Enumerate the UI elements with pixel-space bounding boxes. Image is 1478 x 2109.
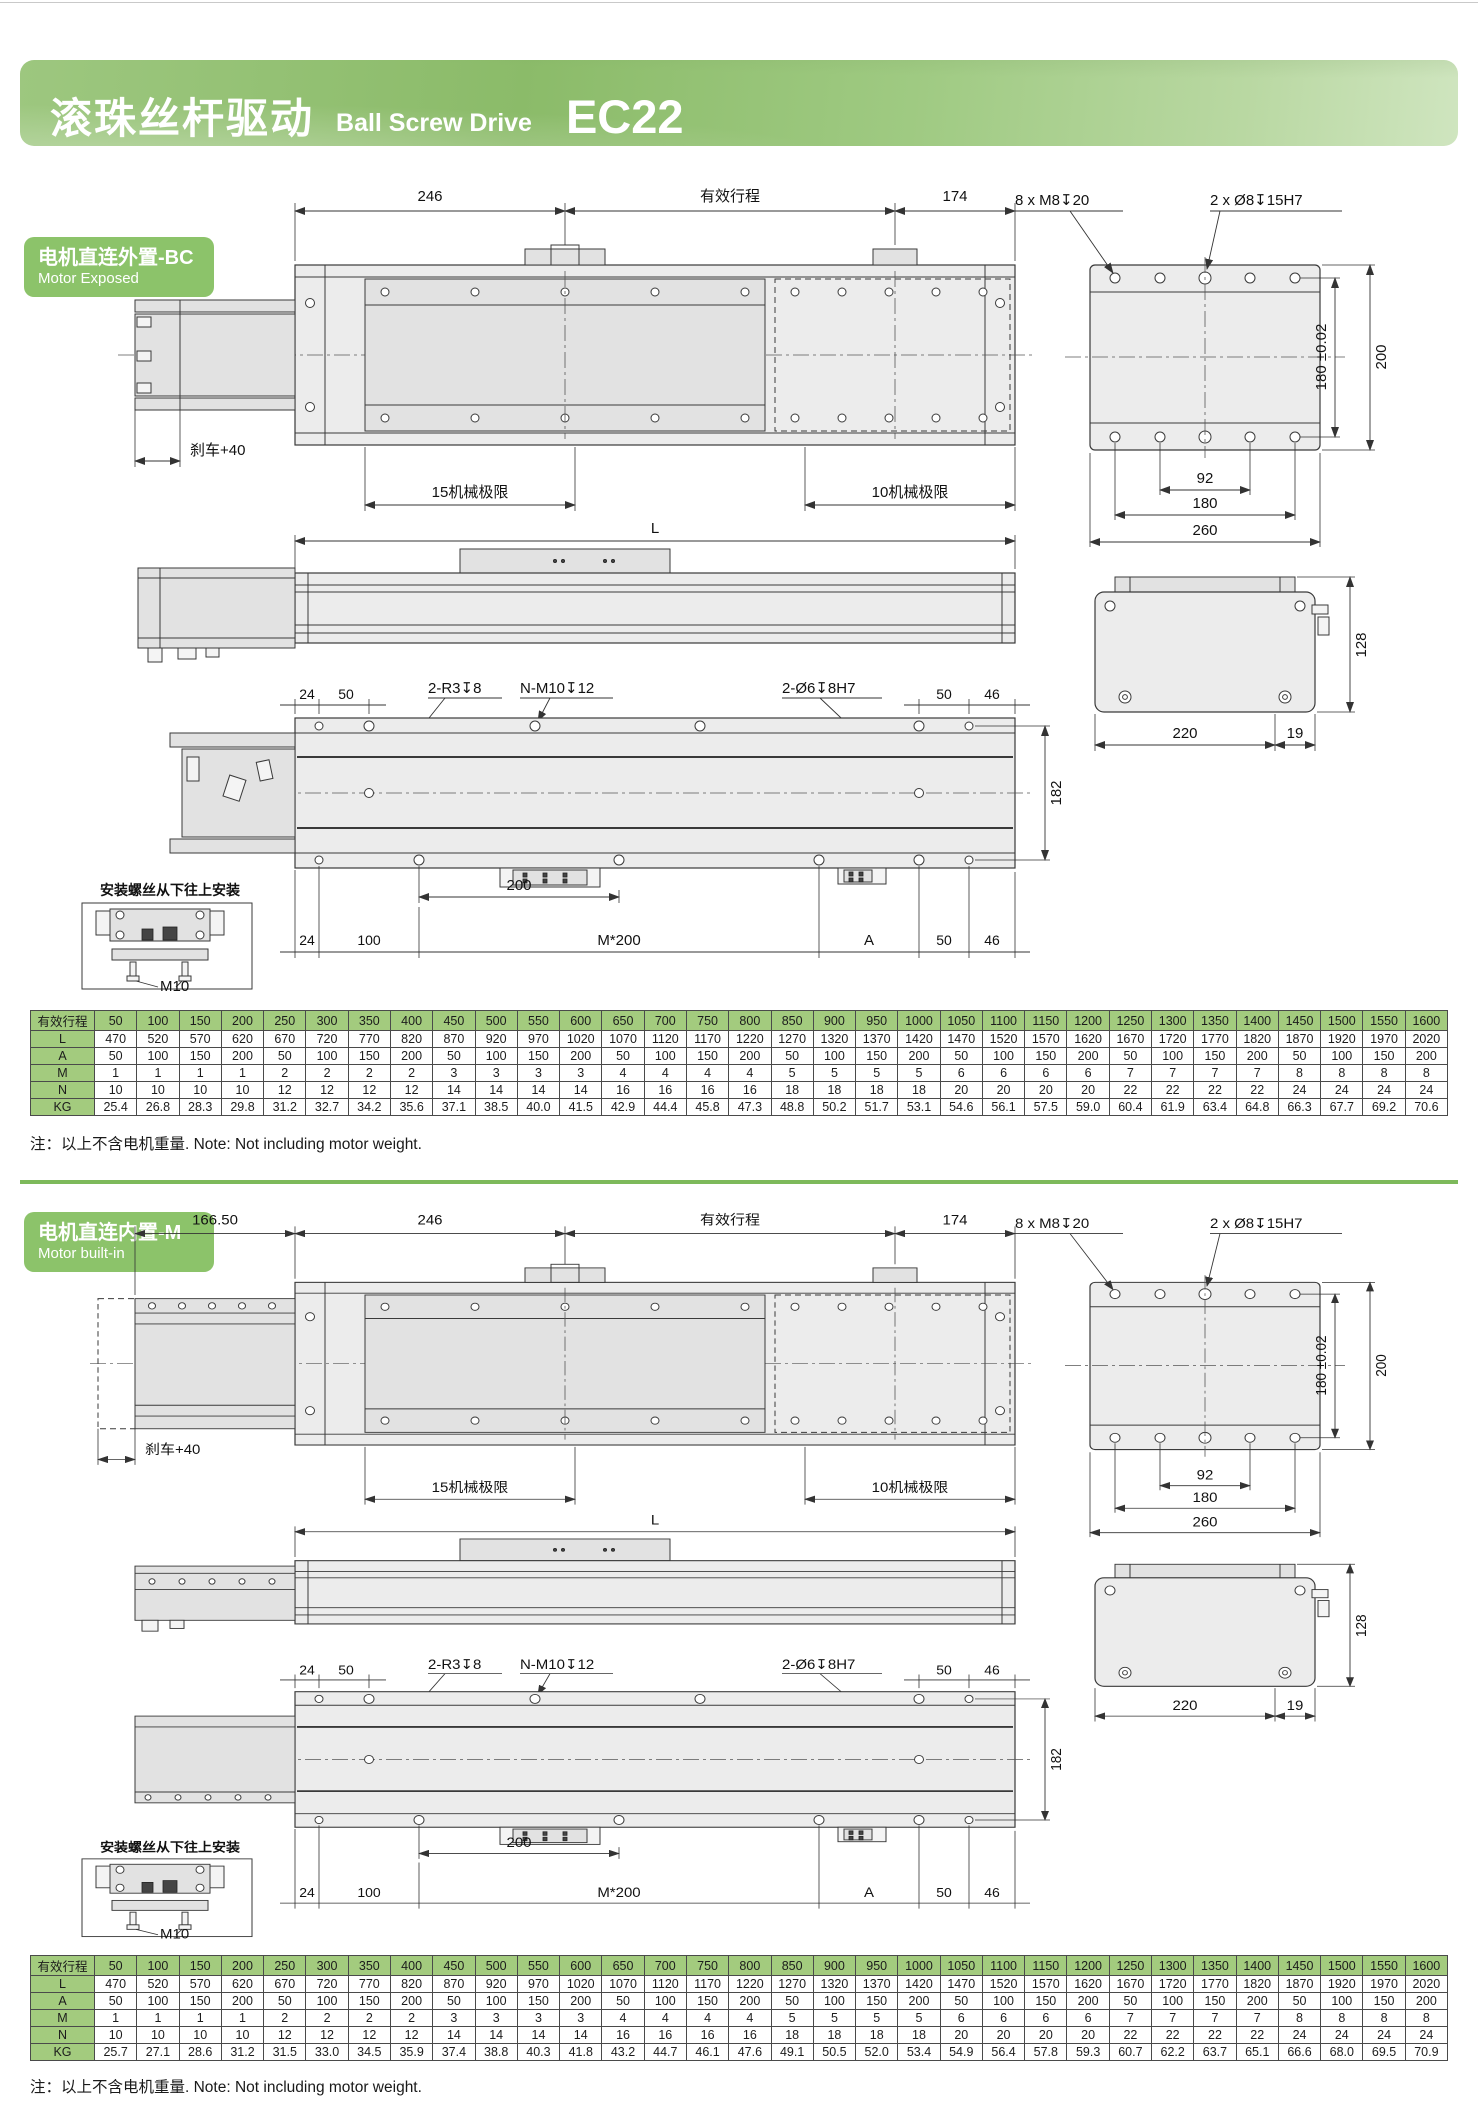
- table-cell: 6: [1025, 2010, 1067, 2027]
- table-cell: 1420: [898, 1031, 940, 1048]
- table-cell: 54.6: [940, 1099, 982, 1116]
- table-cell: 8: [1321, 2010, 1363, 2027]
- table-cell: 3: [433, 2010, 475, 2027]
- table-cell: 570: [179, 1031, 221, 1048]
- table-cell: 5: [856, 1065, 898, 1082]
- table-cell: 100: [1152, 1993, 1194, 2010]
- table-cell: 1620: [1067, 1976, 1109, 1993]
- table-cell: 10: [137, 2027, 179, 2044]
- table-cell: A: [31, 1048, 95, 1065]
- dim-260: 260: [1192, 522, 1217, 539]
- datasheet-page: 滚珠丝杆驱动 Ball Screw Drive EC22 电机直连外置-BC M…: [0, 0, 1478, 2109]
- table-cell: 1: [179, 1065, 221, 1082]
- dim-24b: 24: [299, 932, 315, 948]
- plan-view-m: 166.50 246 有效行程 174 刹车+40 15机械极限 10机械极限: [90, 1212, 1035, 1504]
- table-cell: 500: [475, 1011, 517, 1031]
- table-cell: L: [31, 1976, 95, 1993]
- dim-24t-m: 24: [299, 1663, 315, 1677]
- table-cell: 6: [982, 1065, 1024, 1082]
- table-cell: 1550: [1363, 1011, 1405, 1031]
- table-cell: 34.2: [348, 1099, 390, 1116]
- table-cell: 32.7: [306, 1099, 348, 1116]
- dim-m200: M*200: [597, 932, 640, 949]
- table-cell: 16: [686, 1082, 728, 1099]
- table-cell: 10: [95, 2027, 137, 2044]
- callout-r3: 2-R3↧8: [428, 680, 481, 697]
- table-cell: 25.4: [95, 1099, 137, 1116]
- table-cell: 1820: [1236, 1031, 1278, 1048]
- table-cell: 50.5: [813, 2044, 855, 2061]
- table-cell: 100: [137, 1011, 179, 1031]
- table-cell: 59.0: [1067, 1099, 1109, 1116]
- table-cell: 50: [1109, 1993, 1151, 2010]
- table-cell: 100: [644, 1048, 686, 1065]
- table-cell: 620: [221, 1031, 263, 1048]
- dim-24t: 24: [299, 686, 315, 702]
- note-bc: 注：以上不含电机重量. Note: Not including motor we…: [30, 1132, 422, 1154]
- table-cell: 900: [813, 1956, 855, 1976]
- dim-128: 128: [1353, 632, 1370, 657]
- table-cell: 63.4: [1194, 1099, 1236, 1116]
- table-cell: 20: [1025, 1082, 1067, 1099]
- table-cell: 22: [1236, 1082, 1278, 1099]
- table-cell: 570: [179, 1976, 221, 1993]
- table-cell: 350: [348, 1956, 390, 1976]
- table-cell: 2: [348, 1065, 390, 1082]
- table-cell: 1: [179, 2010, 221, 2027]
- table-cell: 200: [1405, 1048, 1447, 1065]
- dim-19: 19: [1287, 725, 1304, 742]
- table-cell: 820: [390, 1976, 432, 1993]
- table-cell: 45.8: [686, 1099, 728, 1116]
- table-cell: 670: [264, 1976, 306, 1993]
- table-cell: 200: [1236, 1048, 1278, 1065]
- table-cell: 50: [95, 1956, 137, 1976]
- table-cell: 69.5: [1363, 2044, 1405, 2061]
- table-cell: 1120: [644, 1976, 686, 1993]
- callout-nm10: N-M10↧12: [520, 680, 594, 697]
- table-cell: 66.6: [1278, 2044, 1320, 2061]
- table-cell: 50: [602, 1048, 644, 1065]
- table-cell: 100: [306, 1993, 348, 2010]
- table-cell: 1170: [686, 1976, 728, 1993]
- table-cell: 1050: [940, 1011, 982, 1031]
- table-cell: 20: [982, 2027, 1024, 2044]
- table-cell: 150: [1025, 1993, 1067, 2010]
- table-cell: 24: [1405, 1082, 1447, 1099]
- table-cell: 150: [1363, 1048, 1405, 1065]
- table-cell: 1270: [771, 1976, 813, 1993]
- table-cell: 520: [137, 1031, 179, 1048]
- table-row: KG25.727.128.631.231.533.034.535.937.438…: [31, 2044, 1448, 2061]
- dim-180: 180: [1192, 495, 1217, 512]
- table-cell: 50: [771, 1048, 813, 1065]
- top-plate-view-m: 8 x M8↧20 2 x Ø8↧15H7 180 ±0.02 200 92 1…: [1015, 1217, 1390, 1537]
- table-cell: 43.2: [602, 2044, 644, 2061]
- table-cell: 47.6: [729, 2044, 771, 2061]
- section1-drawing: 246 有效行程 174 刹车+40 15机械极限 10机械极限: [30, 165, 1448, 995]
- table-cell: 200: [560, 1993, 602, 2010]
- table-cell: 50: [433, 1048, 475, 1065]
- table-cell: 150: [1194, 1048, 1236, 1065]
- dim-50b-m: 50: [936, 1885, 952, 1899]
- table-cell: 51.7: [856, 1099, 898, 1116]
- mounting-inset-m: 安装螺丝从下往上安装 M10: [82, 1839, 252, 1942]
- table-cell: 7: [1236, 2010, 1278, 2027]
- table-cell: 22: [1194, 1082, 1236, 1099]
- plan-view: 246 有效行程 174 刹车+40 15机械极限 10机械极限: [118, 188, 1035, 511]
- table-cell: 26.8: [137, 1099, 179, 1116]
- table-cell: 1300: [1152, 1011, 1194, 1031]
- dim-220-m: 220: [1172, 1698, 1197, 1713]
- table-cell: 470: [95, 1031, 137, 1048]
- table-cell: 1520: [982, 1031, 1024, 1048]
- table-cell: 18: [856, 2027, 898, 2044]
- callout-r3-m: 2-R3↧8: [428, 1658, 481, 1673]
- table-cell: 44.7: [644, 2044, 686, 2061]
- table-cell: 100: [813, 1048, 855, 1065]
- callout-phi8: 2 x Ø8↧15H7: [1210, 192, 1303, 209]
- table-cell: 700: [644, 1956, 686, 1976]
- table-cell: 1920: [1321, 1976, 1363, 1993]
- table-cell: 65.1: [1236, 2044, 1278, 2061]
- table-cell: 1350: [1194, 1956, 1236, 1976]
- table-cell: 600: [560, 1011, 602, 1031]
- table-cell: 28.6: [179, 2044, 221, 2061]
- table-cell: 4: [729, 1065, 771, 1082]
- table-cell: 400: [390, 1011, 432, 1031]
- dim-L-m: L: [651, 1513, 659, 1528]
- table-cell: 700: [644, 1011, 686, 1031]
- table-cell: 100: [813, 1993, 855, 2010]
- table-row: L470520570620670720770820870920970102010…: [31, 1031, 1448, 1048]
- table-cell: 12: [264, 1082, 306, 1099]
- table-cell: 24: [1321, 1082, 1363, 1099]
- table-cell: 400: [390, 1956, 432, 1976]
- table-cell: 150: [179, 1048, 221, 1065]
- table-cell: 4: [644, 2010, 686, 2027]
- table-cell: 10: [221, 1082, 263, 1099]
- table-cell: 100: [137, 1048, 179, 1065]
- table-cell: 100: [644, 1993, 686, 2010]
- table-cell: 1220: [729, 1976, 771, 1993]
- table-cell: 150: [179, 1993, 221, 2010]
- table-cell: 200: [221, 1993, 263, 2010]
- table-cell: 14: [560, 1082, 602, 1099]
- motor-bottom: [170, 733, 295, 853]
- table-cell: 16: [644, 2027, 686, 2044]
- table-cell: 12: [306, 2027, 348, 2044]
- table-cell: 20: [1067, 2027, 1109, 2044]
- table-cell: 250: [264, 1956, 306, 1976]
- dim-182-m: 182: [1048, 1748, 1065, 1771]
- section-divider: [20, 1180, 1458, 1184]
- dim-200b-m: 200: [506, 1836, 531, 1851]
- dim-46tr-m: 46: [984, 1663, 1000, 1677]
- callout-m8: 8 x M8↧20: [1015, 192, 1089, 209]
- table-cell: 52.0: [856, 2044, 898, 2061]
- table-cell: 150: [179, 1011, 221, 1031]
- table-cell: 46.1: [686, 2044, 728, 2061]
- table-cell: 60.7: [1109, 2044, 1151, 2061]
- table-cell: 1420: [898, 1976, 940, 1993]
- table-cell: 1870: [1278, 1031, 1320, 1048]
- table-cell: 4: [602, 1065, 644, 1082]
- table-cell: 720: [306, 1976, 348, 1993]
- table-cell: 50: [1278, 1993, 1320, 2010]
- table-cell: 有效行程: [31, 1011, 95, 1031]
- table-cell: 10: [179, 1082, 221, 1099]
- table-cell: 950: [856, 1011, 898, 1031]
- table-cell: 69.2: [1363, 1099, 1405, 1116]
- table-cell: 22: [1236, 2027, 1278, 2044]
- side-view-m: L: [135, 1513, 1015, 1631]
- table-cell: 300: [306, 1011, 348, 1031]
- table-cell: 1000: [898, 1956, 940, 1976]
- table-cell: 22: [1152, 1082, 1194, 1099]
- table-cell: 550: [517, 1956, 559, 1976]
- table-cell: 12: [264, 2027, 306, 2044]
- table-cell: 35.6: [390, 1099, 432, 1116]
- table-cell: 31.5: [264, 2044, 306, 2061]
- table-cell: 50: [95, 1011, 137, 1031]
- spec-table-bc: 有效行程501001502002503003504004505005506006…: [30, 1010, 1448, 1116]
- table-cell: 1: [137, 1065, 179, 1082]
- page-title-en: Ball Screw Drive: [336, 111, 532, 136]
- table-cell: 100: [1152, 1048, 1194, 1065]
- table-cell: A: [31, 1993, 95, 2010]
- table-cell: 3: [475, 1065, 517, 1082]
- table-cell: 1200: [1067, 1011, 1109, 1031]
- dim-stroke: 有效行程: [700, 188, 760, 205]
- table-cell: 970: [517, 1976, 559, 1993]
- table-row: M11112222333344445555666677778888: [31, 1065, 1448, 1082]
- dim-246-m: 246: [417, 1213, 442, 1228]
- table-cell: 38.5: [475, 1099, 517, 1116]
- table-cell: 34.5: [348, 2044, 390, 2061]
- table-cell: 1000: [898, 1011, 940, 1031]
- table-cell: 920: [475, 1031, 517, 1048]
- inset-m10-label-m: M10: [160, 1927, 189, 1942]
- inset-m10-label: M10: [160, 978, 189, 995]
- table-cell: M: [31, 1065, 95, 1082]
- table-cell: 10: [221, 2027, 263, 2044]
- table-cell: 42.9: [602, 1099, 644, 1116]
- table-cell: 900: [813, 1011, 855, 1031]
- inset-caption-m: 安装螺丝从下往上安装: [100, 1839, 241, 1854]
- table-cell: 6: [1025, 1065, 1067, 1082]
- table-cell: 200: [390, 1993, 432, 2010]
- table-cell: 14: [517, 2027, 559, 2044]
- table-cell: 770: [348, 1031, 390, 1048]
- table-cell: 22: [1152, 2027, 1194, 2044]
- table-cell: 14: [433, 1082, 475, 1099]
- table-cell: 1470: [940, 1976, 982, 1993]
- mounting-inset: 安装螺丝从下往上安装 M10: [82, 882, 252, 995]
- table-cell: 1500: [1321, 1956, 1363, 1976]
- dim-180-tol: 180 ±0.02: [1313, 324, 1330, 391]
- table-cell: 54.9: [940, 2044, 982, 2061]
- table-cell: 1870: [1278, 1976, 1320, 1993]
- table-cell: 70.9: [1405, 2044, 1447, 2061]
- table-row: A501001502005010015020050100150200501001…: [31, 1993, 1448, 2010]
- table-cell: 50: [433, 1993, 475, 2010]
- end-view-m: 128 220 19: [1095, 1564, 1370, 1721]
- table-cell: 6: [940, 1065, 982, 1082]
- table-cell: 33.0: [306, 2044, 348, 2061]
- table-cell: 24: [1278, 1082, 1320, 1099]
- table-cell: 1120: [644, 1031, 686, 1048]
- table-cell: 50.2: [813, 1099, 855, 1116]
- table-cell: 150: [517, 1048, 559, 1065]
- dim-limit15-m: 15机械极限: [432, 1480, 509, 1496]
- table-cell: 14: [560, 2027, 602, 2044]
- table-cell: 100: [475, 1048, 517, 1065]
- table-cell: 600: [560, 1956, 602, 1976]
- table-cell: 50: [771, 1993, 813, 2010]
- table-cell: 27.1: [137, 2044, 179, 2061]
- table-cell: 50: [95, 1993, 137, 2010]
- dim-100-m: 100: [357, 1885, 380, 1899]
- table-cell: 47.3: [729, 1099, 771, 1116]
- table-cell: 1820: [1236, 1976, 1278, 1993]
- table-cell: 50: [940, 1048, 982, 1065]
- table-cell: 10: [179, 2027, 221, 2044]
- dim-180-tol-m: 180 ±0.02: [1313, 1335, 1330, 1395]
- dim-46b-m: 46: [984, 1885, 1000, 1899]
- table-cell: N: [31, 1082, 95, 1099]
- table-cell: 470: [95, 1976, 137, 1993]
- table-cell: 250: [264, 1011, 306, 1031]
- table-cell: 12: [348, 1082, 390, 1099]
- table-cell: 5: [898, 1065, 940, 1082]
- table-cell: 20: [1067, 1082, 1109, 1099]
- dim-128-m: 128: [1353, 1614, 1370, 1637]
- inset-caption: 安装螺丝从下往上安装: [100, 882, 241, 898]
- table-cell: 5: [813, 1065, 855, 1082]
- table-cell: 28.3: [179, 1099, 221, 1116]
- table-cell: 1570: [1025, 1976, 1067, 1993]
- table-cell: 16: [644, 1082, 686, 1099]
- table-cell: 50: [264, 1993, 306, 2010]
- table-cell: 18: [813, 1082, 855, 1099]
- table-cell: 150: [517, 1993, 559, 2010]
- table-cell: 50: [602, 1993, 644, 2010]
- dim-260-m: 260: [1192, 1515, 1217, 1530]
- table-cell: 22: [1109, 2027, 1151, 2044]
- table-cell: 200: [1405, 1993, 1447, 2010]
- table-cell: 38.8: [475, 2044, 517, 2061]
- table-cell: 870: [433, 1976, 475, 1993]
- dim-limit10-m: 10机械极限: [872, 1480, 949, 1496]
- table-cell: 5: [771, 2010, 813, 2027]
- table-cell: 7: [1152, 1065, 1194, 1082]
- callout-phi8-m: 2 x Ø8↧15H7: [1210, 1217, 1303, 1232]
- dim-stroke-m: 有效行程: [700, 1212, 760, 1228]
- table-cell: 800: [729, 1956, 771, 1976]
- dim-166: 166.50: [192, 1213, 238, 1228]
- dim-92-m: 92: [1197, 1468, 1214, 1483]
- table-cell: 1020: [560, 1976, 602, 1993]
- table-cell: 520: [137, 1976, 179, 1993]
- table-row: KG25.426.828.329.831.232.734.235.637.138…: [31, 1099, 1448, 1116]
- table-cell: 200: [1236, 1993, 1278, 2010]
- table-cell: 48.8: [771, 1099, 813, 1116]
- table-cell: 20: [940, 2027, 982, 2044]
- table-cell: 16: [602, 2027, 644, 2044]
- table-cell: 8: [1278, 1065, 1320, 1082]
- table-cell: 200: [898, 1048, 940, 1065]
- top-rule: [0, 2, 1478, 3]
- table-cell: 150: [856, 1048, 898, 1065]
- table-cell: 6: [940, 2010, 982, 2027]
- table-cell: 20: [940, 1082, 982, 1099]
- dim-100: 100: [357, 932, 381, 948]
- table-cell: 1520: [982, 1976, 1024, 1993]
- end-view: 128 220 19: [1095, 577, 1370, 751]
- table-cell: KG: [31, 2044, 95, 2061]
- table-cell: 650: [602, 1956, 644, 1976]
- table-cell: 620: [221, 1976, 263, 1993]
- table-cell: 1200: [1067, 1956, 1109, 1976]
- table-row: N101010101212121214141414161616161818181…: [31, 1082, 1448, 1099]
- dim-19-m: 19: [1287, 1698, 1304, 1713]
- table-cell: 970: [517, 1031, 559, 1048]
- table-cell: 1070: [602, 1031, 644, 1048]
- table-cell: 3: [433, 1065, 475, 1082]
- table-cell: L: [31, 1031, 95, 1048]
- table-row: A501001502005010015020050100150200501001…: [31, 1048, 1448, 1065]
- table-cell: 12: [390, 2027, 432, 2044]
- table-cell: 2: [264, 1065, 306, 1082]
- table-cell: 14: [475, 1082, 517, 1099]
- table-cell: 1: [221, 2010, 263, 2027]
- builtin-bottom: [135, 1716, 295, 1803]
- table-cell: 1670: [1109, 1976, 1151, 1993]
- top-plate-view: 8 x M8↧20 2 x Ø8↧15H7 180 ±0.02 200 92 1…: [1015, 192, 1390, 547]
- table-cell: 16: [729, 1082, 771, 1099]
- table-cell: 200: [221, 1956, 263, 1976]
- table-cell: 2020: [1405, 1031, 1447, 1048]
- table-cell: 750: [686, 1956, 728, 1976]
- table-cell: 3: [560, 2010, 602, 2027]
- table-cell: 24: [1363, 2027, 1405, 2044]
- motor-exposed: [135, 300, 295, 410]
- table-cell: 150: [348, 1048, 390, 1065]
- table-cell: 49.1: [771, 2044, 813, 2061]
- table-cell: 60.4: [1109, 1099, 1151, 1116]
- page-header-banner: 滚珠丝杆驱动 Ball Screw Drive EC22: [20, 60, 1458, 146]
- table-cell: 35.9: [390, 2044, 432, 2061]
- table-cell: 1020: [560, 1031, 602, 1048]
- table-cell: 200: [221, 1011, 263, 1031]
- table-cell: 2: [390, 2010, 432, 2027]
- table-cell: 16: [602, 1082, 644, 1099]
- table-cell: 5: [856, 2010, 898, 2027]
- dim-246: 246: [417, 188, 442, 205]
- table-cell: 16: [729, 2027, 771, 2044]
- dim-50t: 50: [338, 686, 354, 702]
- table-row: L470520570620670720770820870920970102010…: [31, 1976, 1448, 1993]
- table-cell: 37.4: [433, 2044, 475, 2061]
- table-cell: 18: [813, 2027, 855, 2044]
- table-cell: 150: [348, 1993, 390, 2010]
- table-cell: 8: [1278, 2010, 1320, 2027]
- table-cell: 300: [306, 1956, 348, 1976]
- table-cell: 1970: [1363, 1976, 1405, 1993]
- table-cell: 1300: [1152, 1956, 1194, 1976]
- table-cell: 820: [390, 1031, 432, 1048]
